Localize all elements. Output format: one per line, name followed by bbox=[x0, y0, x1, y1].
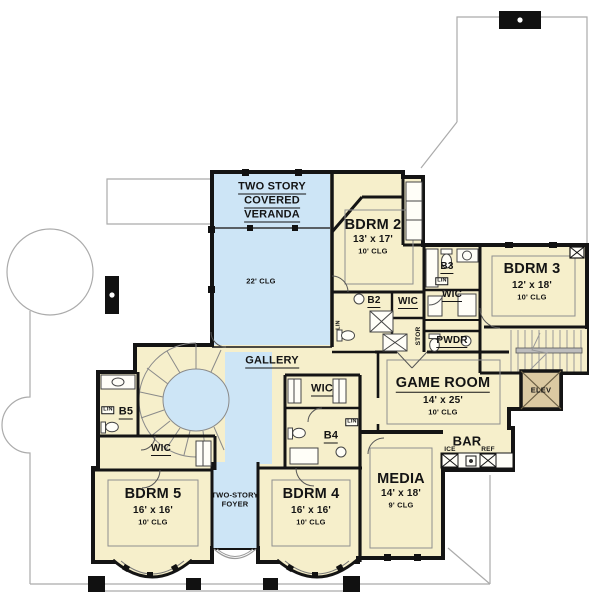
window-icon bbox=[242, 169, 249, 176]
floor-plan: TWO STORY COVERED VERANDA 22' CLG BDRM 2… bbox=[0, 0, 600, 606]
veranda-label-line2: COVERED bbox=[244, 196, 300, 209]
linen-label: LIN bbox=[345, 418, 358, 426]
bar-ref-label: REF bbox=[481, 447, 495, 454]
chimney-vent-dot bbox=[109, 292, 114, 297]
bdrm2-label: BDRM 2 bbox=[345, 218, 402, 233]
game-room-label: GAME ROOM bbox=[396, 376, 490, 393]
linen-label: LIN bbox=[101, 406, 114, 414]
roof-outline-bottom-diagonal bbox=[448, 548, 490, 584]
game-room-size-label: 14' x 25' bbox=[423, 396, 463, 406]
bdrm3-label: BDRM 3 bbox=[504, 262, 561, 277]
window-icon bbox=[292, 225, 298, 231]
toilet-icon bbox=[101, 422, 118, 433]
foyer-label-line2: FOYER bbox=[222, 500, 249, 508]
sink-icon bbox=[457, 249, 478, 262]
window-icon bbox=[414, 554, 421, 561]
spiral-stair-well bbox=[163, 369, 229, 431]
wic-b5-label: WIC bbox=[151, 444, 171, 456]
terrace-post-icon bbox=[343, 576, 360, 592]
wic-core-label: WIC bbox=[398, 297, 418, 309]
wic-b4-label: WIC bbox=[311, 384, 333, 397]
bdrm5-size-label: 16' x 16' bbox=[133, 506, 173, 516]
window-icon bbox=[208, 286, 215, 293]
veranda-label-line3: VERANDA bbox=[244, 210, 300, 223]
stairwell-open-area bbox=[225, 352, 272, 464]
stair-rail bbox=[516, 348, 582, 353]
sink-icon bbox=[336, 447, 346, 457]
roof-outline-diagonal bbox=[421, 122, 457, 168]
veranda-label-line1: TWO STORY bbox=[238, 182, 306, 195]
toilet-icon bbox=[288, 428, 305, 439]
bdrm4-ceiling-label: 10' CLG bbox=[296, 518, 325, 526]
bar-label: BAR bbox=[453, 435, 482, 448]
game-room-ceiling-label: 10' CLG bbox=[428, 408, 457, 416]
bdrm3-ceiling-label: 10' CLG bbox=[517, 293, 546, 301]
storage-label: STOR bbox=[416, 327, 423, 346]
linen-label: LIN bbox=[435, 277, 448, 285]
elevator-label: ELEV bbox=[531, 386, 551, 394]
tub-icon bbox=[290, 448, 318, 464]
gallery-label: GALLERY bbox=[245, 356, 299, 369]
bar-counter bbox=[441, 453, 513, 468]
toilet-icon bbox=[337, 330, 355, 341]
window-icon bbox=[295, 169, 302, 176]
linen-label: LIN bbox=[336, 320, 342, 329]
terrace-post-icon bbox=[263, 578, 278, 590]
roof-outline-turret bbox=[7, 229, 93, 315]
media-size-label: 14' x 18' bbox=[381, 489, 421, 499]
roof-outline-left-bump bbox=[2, 311, 30, 584]
roof-outline-top-right bbox=[457, 17, 587, 244]
window-icon bbox=[384, 554, 391, 561]
bdrm4-size-label: 16' x 16' bbox=[291, 506, 331, 516]
window-icon bbox=[505, 242, 513, 248]
window-icon bbox=[247, 225, 253, 231]
bdrm2-size-label: 13' x 17' bbox=[353, 235, 393, 245]
veranda-ceiling-label: 22' CLG bbox=[246, 277, 275, 285]
wic-b3-label: WIC bbox=[442, 290, 462, 302]
bath3-label: B3 bbox=[440, 262, 453, 274]
media-label: MEDIA bbox=[377, 472, 425, 487]
terrace-post-icon bbox=[88, 576, 105, 592]
media-ceiling-label: 9' CLG bbox=[388, 501, 413, 509]
window-icon bbox=[549, 242, 557, 248]
bdrm5-ceiling-label: 10' CLG bbox=[138, 518, 167, 526]
bdrm3-size-label: 12' x 18' bbox=[512, 281, 552, 291]
bath2-label: B2 bbox=[367, 296, 380, 308]
bdrm2-ceiling-label: 10' CLG bbox=[358, 247, 387, 255]
bdrm3-corner-window bbox=[570, 247, 584, 258]
foyer-label-line1: TWO-STORY bbox=[211, 491, 258, 499]
bar-ice-label: ICE bbox=[444, 447, 455, 454]
bath4-label: B4 bbox=[324, 431, 338, 444]
powder-label: PWDR bbox=[436, 336, 467, 348]
bar-ref-icon bbox=[480, 454, 496, 467]
sink-icon bbox=[354, 294, 364, 304]
bdrm5-label: BDRM 5 bbox=[125, 487, 182, 502]
sink-icon bbox=[112, 378, 124, 386]
foyer-arch bbox=[214, 549, 256, 559]
bath5-label: B5 bbox=[119, 407, 133, 420]
bdrm4-label: BDRM 4 bbox=[283, 487, 340, 502]
chimney-vent-dot bbox=[517, 17, 522, 22]
terrace-post-icon bbox=[186, 578, 201, 590]
stairs-icon bbox=[505, 329, 587, 373]
window-icon bbox=[208, 226, 215, 233]
roof-outline-left-notch bbox=[107, 179, 211, 224]
bar-ice-icon bbox=[442, 454, 458, 467]
